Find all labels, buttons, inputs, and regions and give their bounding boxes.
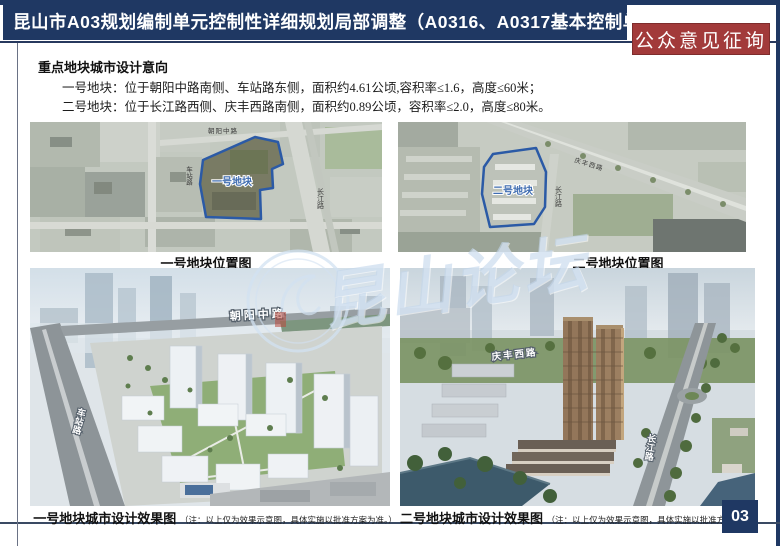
- plot1-rendering-caption-note: （注：以上仅为效果示意图，具体实施以批准方案为准。）: [180, 515, 397, 525]
- page-number: 03: [722, 500, 758, 533]
- plot1-rendering-caption: 一号地块城市设计效果图 （注：以上仅为效果示意图，具体实施以批准方案为准。）: [30, 508, 400, 527]
- plot1-rendering-image: 朝阳中路 车站路: [30, 268, 390, 506]
- plot1-map-road-label-changjiang: 长江路: [317, 187, 325, 210]
- page-title: 昆山市A03规划编制单元控制性详细规划局部调整（A0316、A0317基本控制单…: [3, 5, 627, 40]
- plot1-location-map-image: 一号地块 朝阳中路 车站路 长江路: [30, 122, 382, 252]
- plot2-location-map-image: 二号地块 庆丰西路 长江路: [398, 122, 746, 252]
- left-frame-line: [17, 43, 18, 546]
- plot1-map-road-label-chaoyang: 朝阳中路: [208, 126, 238, 135]
- plot1-rendering-scene: [30, 268, 390, 506]
- public-opinion-badge: 公众意见征询: [632, 23, 770, 55]
- plot2-rendering-image: 庆丰西路 长江路: [400, 268, 755, 506]
- planning-notice-page: 昆山市A03规划编制单元控制性详细规划局部调整（A0316、A0317基本控制单…: [0, 0, 780, 546]
- plot2-description: 二号地块：位于长江路西侧、庆丰西路南侧，面积约0.89公顷，容积率≤2.0，高度…: [62, 96, 551, 115]
- plot2-map-aerial-background: [398, 122, 746, 252]
- plot2-map-road-label-changjiang: 长江路: [555, 185, 563, 208]
- plot1-map-plot-label: 一号地块: [212, 175, 253, 188]
- plot2-rendering-caption-title: 二号地块城市设计效果图: [400, 511, 543, 526]
- plot1-rendering-caption-title: 一号地块城市设计效果图: [33, 511, 176, 526]
- plot2-map-plot-label: 二号地块: [493, 184, 534, 197]
- plot2-rendering-scene: [400, 268, 755, 506]
- plot1-description: 一号地块：位于朝阳中路南侧、车站路东侧，面积约4.61公顷,容积率≤1.6，高度…: [62, 77, 541, 96]
- section-heading: 重点地块城市设计意向: [38, 57, 168, 76]
- plot2-rendering-caption: 二号地块城市设计效果图 （注：以上仅为效果示意图，具体实施以批准方案为准。）: [400, 508, 755, 527]
- page-border-right: [776, 0, 780, 546]
